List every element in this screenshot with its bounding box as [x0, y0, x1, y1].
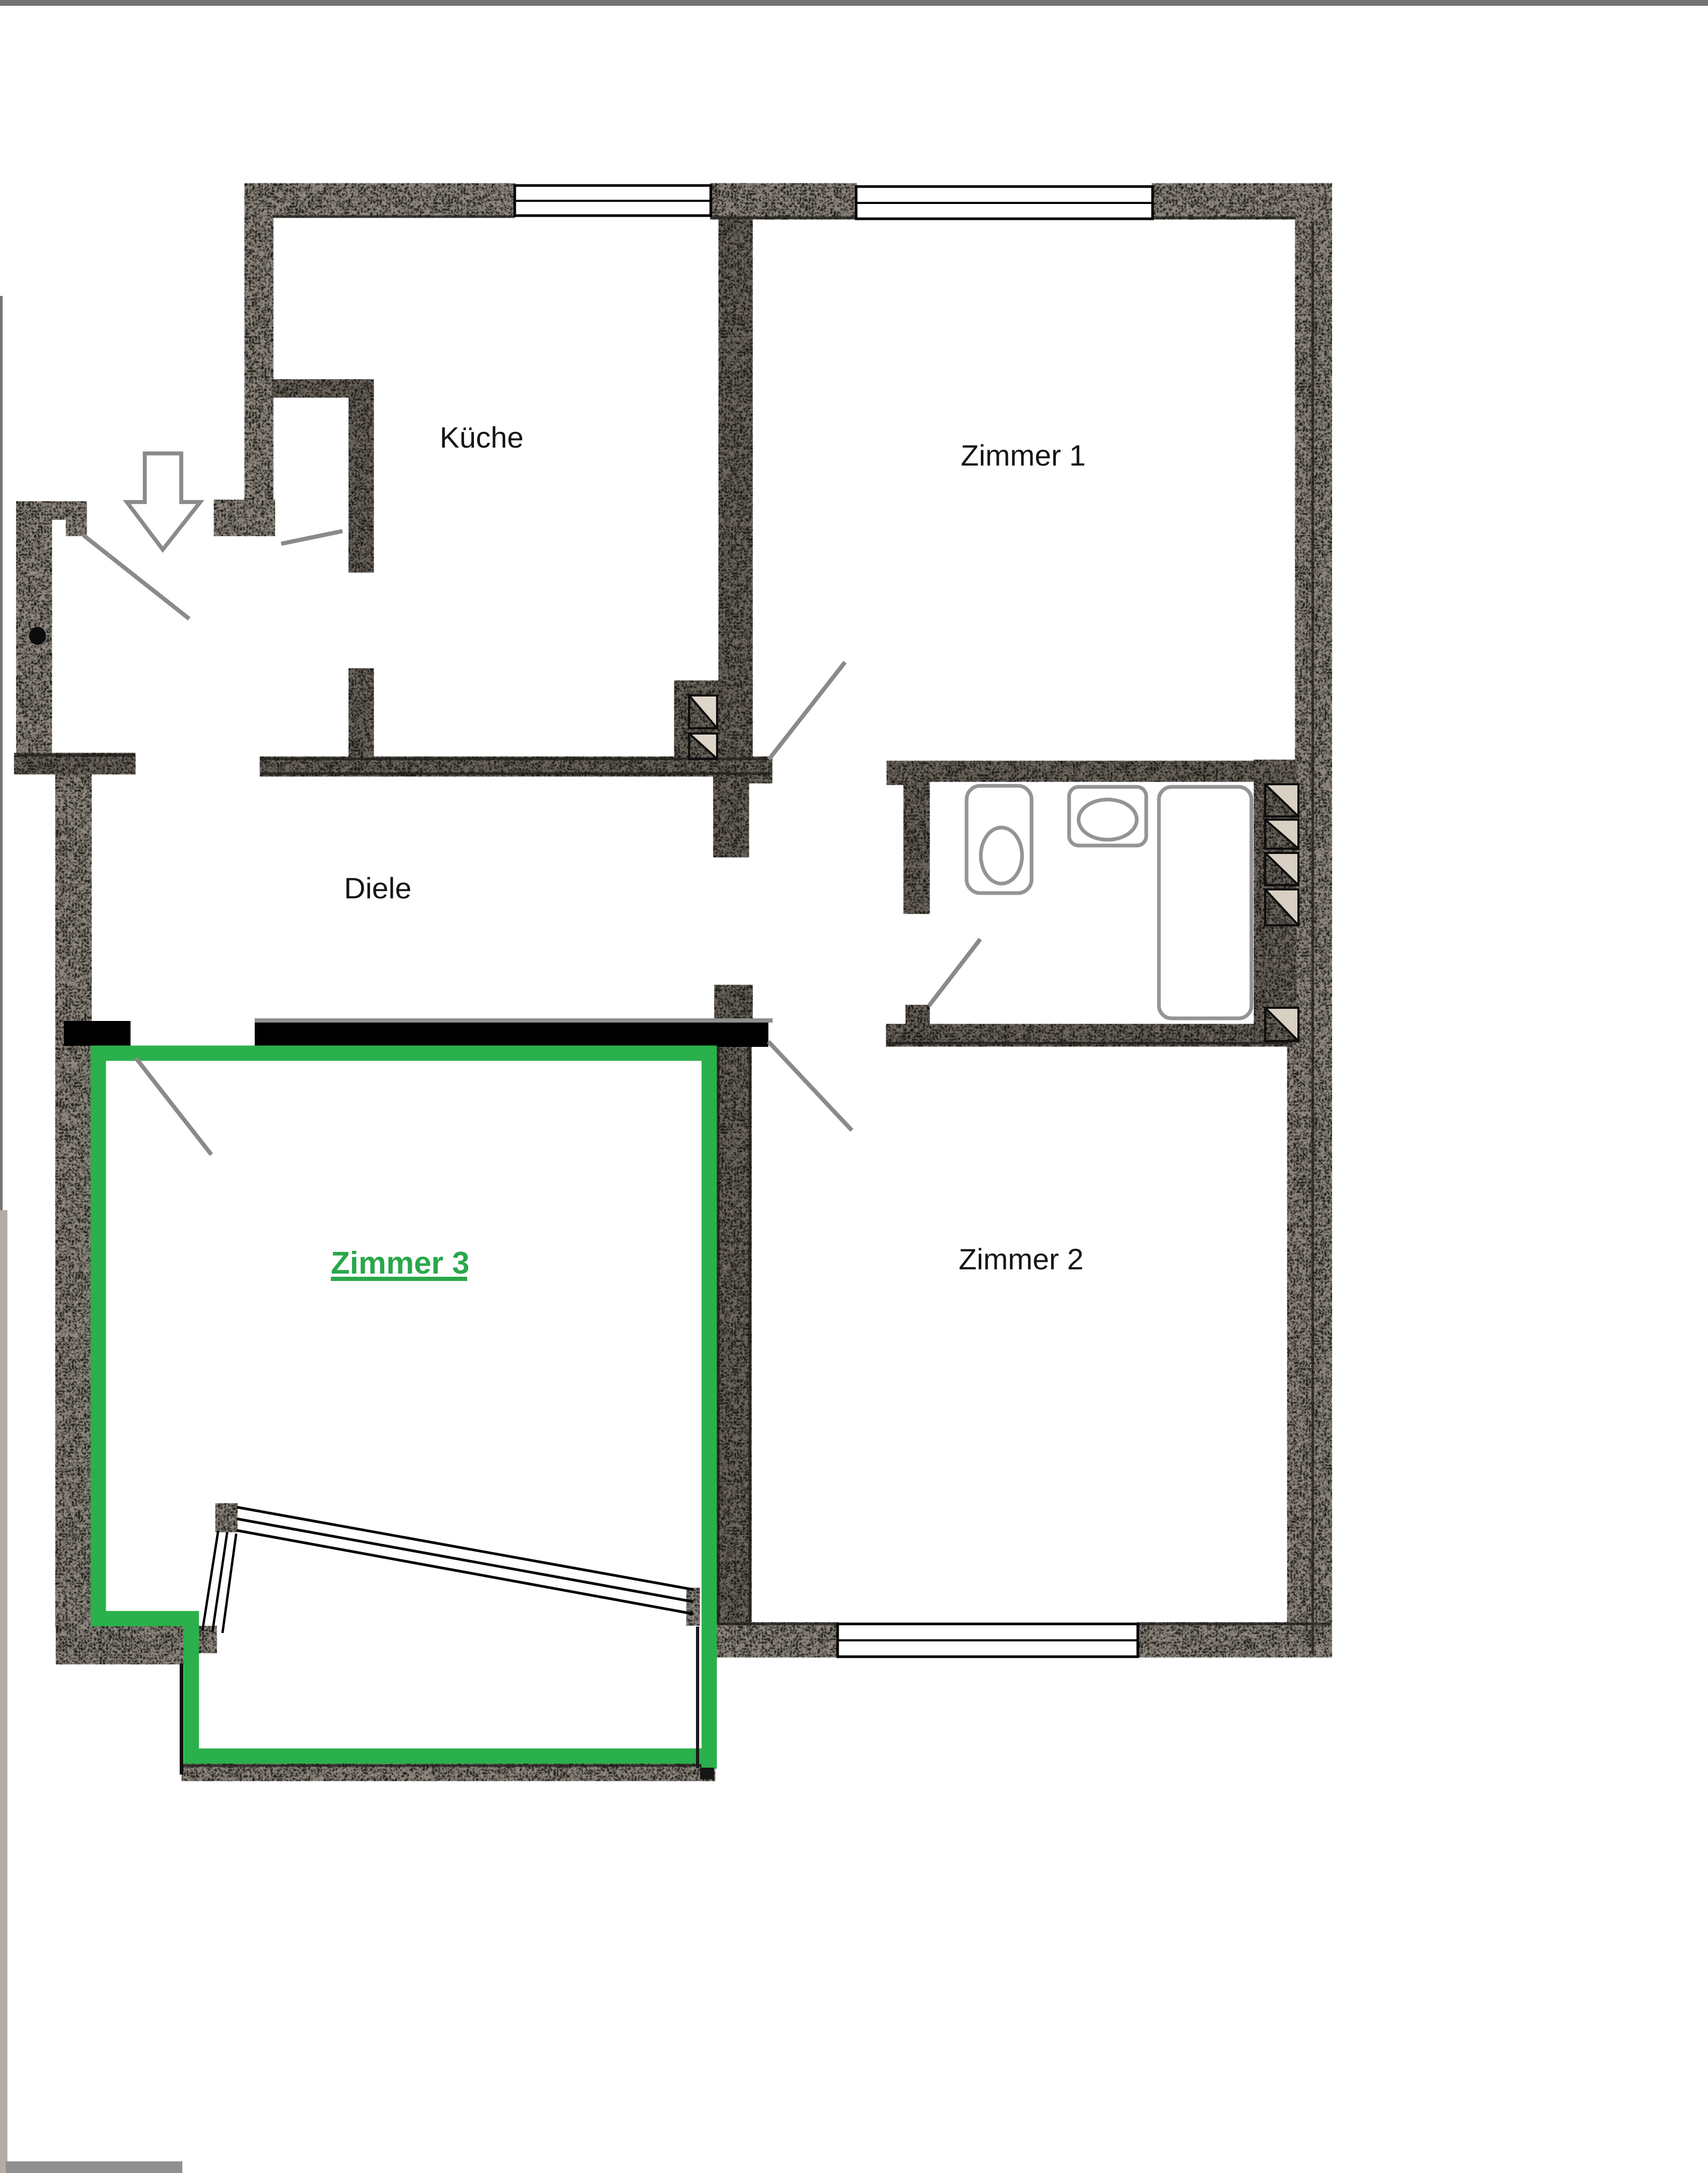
svg-text:Zimmer 3: Zimmer 3: [331, 1246, 469, 1280]
svg-text:Diele: Diele: [344, 871, 412, 905]
svg-text:Küche: Küche: [440, 421, 524, 454]
svg-text:Zimmer 2: Zimmer 2: [959, 1242, 1083, 1276]
svg-text:Zimmer 1: Zimmer 1: [961, 439, 1085, 472]
